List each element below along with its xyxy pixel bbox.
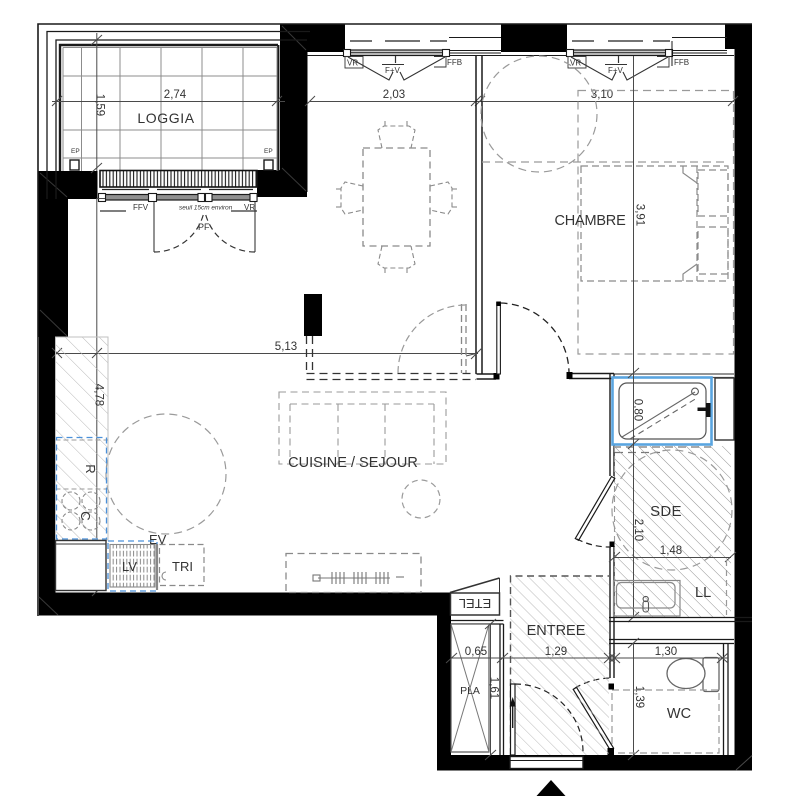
svg-text:1,59: 1,59 xyxy=(94,94,106,116)
svg-text:ENTREE: ENTREE xyxy=(527,623,586,639)
svg-text:FFB: FFB xyxy=(674,58,689,67)
svg-text:PF: PF xyxy=(198,222,210,232)
svg-text:2,03: 2,03 xyxy=(383,89,405,101)
svg-text:1,48: 1,48 xyxy=(660,545,682,557)
svg-text:EP: EP xyxy=(71,148,80,155)
svg-text:C: C xyxy=(78,511,93,520)
svg-text:R: R xyxy=(83,464,98,473)
svg-text:WC: WC xyxy=(667,706,691,722)
svg-text:LOGGIA: LOGGIA xyxy=(137,110,194,126)
svg-text:1,61: 1,61 xyxy=(488,677,500,699)
svg-text:PLA: PLA xyxy=(460,685,480,697)
svg-text:LL: LL xyxy=(695,585,711,601)
svg-text:seuil 15cm environ: seuil 15cm environ xyxy=(179,205,233,212)
svg-text:SDE: SDE xyxy=(650,503,682,520)
svg-text:FFB: FFB xyxy=(447,58,462,67)
svg-text:2,10: 2,10 xyxy=(632,519,644,541)
svg-text:3,91: 3,91 xyxy=(634,204,646,226)
svg-text:2,74: 2,74 xyxy=(164,89,187,101)
svg-text:1,39: 1,39 xyxy=(633,686,645,708)
svg-text:FFV: FFV xyxy=(133,203,149,212)
svg-text:ETEL: ETEL xyxy=(459,596,492,611)
svg-text:EP: EP xyxy=(264,148,273,155)
svg-text:5,13: 5,13 xyxy=(275,341,297,353)
svg-text:1,29: 1,29 xyxy=(545,646,567,658)
svg-text:1,30: 1,30 xyxy=(655,646,677,658)
svg-text:CUISINE / SEJOUR: CUISINE / SEJOUR xyxy=(288,455,418,471)
svg-text:TRI: TRI xyxy=(172,559,193,574)
svg-text:0,65: 0,65 xyxy=(465,646,487,658)
svg-text:CHAMBRE: CHAMBRE xyxy=(554,213,626,229)
svg-text:LV: LV xyxy=(122,559,137,574)
